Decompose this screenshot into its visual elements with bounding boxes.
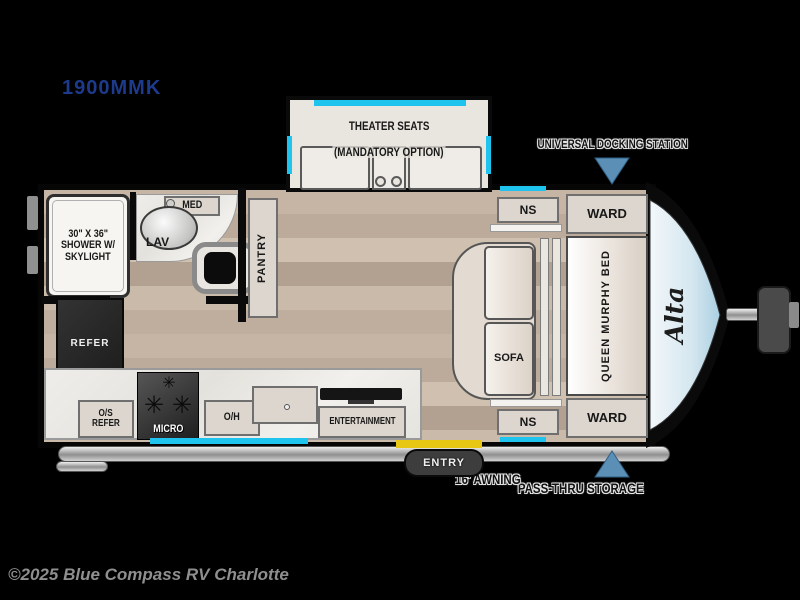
burner-icon: ✳ [140, 391, 168, 419]
entry-label: ENTRY [423, 457, 465, 469]
sofa-cushion: SOFA [484, 322, 534, 396]
hitch-tip [789, 302, 799, 328]
cooktop: ✳ ✳ ✳ MICRO [137, 372, 199, 440]
pantry-wall [238, 188, 246, 322]
kitchen-drawer [252, 386, 318, 424]
bed-rail [490, 224, 562, 232]
cupholder-icon [391, 176, 402, 187]
outside-refer-cabinet: O/S REFER [78, 400, 134, 438]
refer-label: REFER [71, 338, 110, 349]
entry-step: ENTRY [404, 449, 484, 477]
pantry-label: PANTRY [257, 233, 269, 283]
drawer-knob-icon [284, 404, 290, 410]
wardrobe-top: WARD [566, 194, 648, 234]
slideout-accent [314, 100, 466, 106]
shower: 30" X 36" SHOWER W/ SKYLIGHT [46, 194, 130, 298]
propane-tank-box [757, 286, 791, 354]
chassis-rail-step [56, 461, 108, 472]
docking-station-arrow-icon [592, 156, 632, 186]
theater-seats-option-label: (MANDATORY OPTION) [292, 145, 486, 159]
entry-door-accent [396, 440, 482, 448]
sofa-cushion [484, 246, 534, 320]
os-refer-label-line2: REFER [92, 419, 120, 430]
microwave-label: MICRO [138, 421, 198, 437]
entertainment-center: ENTERTAINMENT [318, 406, 406, 438]
cupholder-icon [375, 176, 386, 187]
ns-bottom-label: NS [520, 416, 537, 429]
bed-slat [540, 238, 549, 396]
bed-rail [490, 399, 562, 407]
oh-label: O/H [224, 412, 240, 424]
nightstand-bottom: NS [497, 409, 559, 435]
entertainment-label: ENTERTAINMENT [329, 417, 395, 428]
ward-top-label: WARD [587, 207, 627, 221]
lav-label: LAV [146, 236, 169, 249]
pass-thru-arrow-icon [592, 449, 632, 479]
burner-icon: ✳ [168, 391, 196, 419]
hitch-coupler [726, 308, 760, 321]
theater-seats-label: THEATER SEATS [292, 119, 486, 133]
tv-icon [320, 388, 402, 400]
brand-logo: Alta [657, 281, 691, 349]
ns-top-label: NS [520, 204, 537, 217]
chassis-rail [58, 446, 670, 462]
window-accent [500, 437, 546, 442]
slideout-accent [486, 136, 491, 174]
rear-bumper-tab [27, 196, 38, 230]
floorplan-page: 1900MMK Alta 30" X 36" SHOWER W/ SKYLIGH… [0, 0, 800, 600]
model-number: 1900MMK [62, 78, 161, 99]
skylight-label: SKYLIGHT [65, 252, 111, 264]
sofa-label: SOFA [494, 353, 524, 365]
ward-bottom-label: WARD [587, 411, 627, 425]
window-accent [500, 186, 546, 191]
bed-slat [552, 238, 561, 396]
murphy-bed: QUEEN MURPHY BED [566, 236, 648, 396]
toilet-icon [192, 242, 256, 294]
docking-station-label: UNIVERSAL DOCKING STATION [520, 136, 705, 151]
copyright-text: ©2025 Blue Compass RV Charlotte [8, 565, 289, 585]
brand-logo-text: Alta [660, 287, 689, 344]
window-accent [150, 438, 308, 444]
rear-bumper-tab [27, 246, 38, 274]
nightstand-top: NS [497, 197, 559, 223]
murphy-bed-label: QUEEN MURPHY BED [601, 250, 613, 382]
pantry: PANTRY [248, 198, 278, 318]
wardrobe-bottom: WARD [566, 398, 648, 438]
tv-stand-icon [348, 400, 374, 404]
